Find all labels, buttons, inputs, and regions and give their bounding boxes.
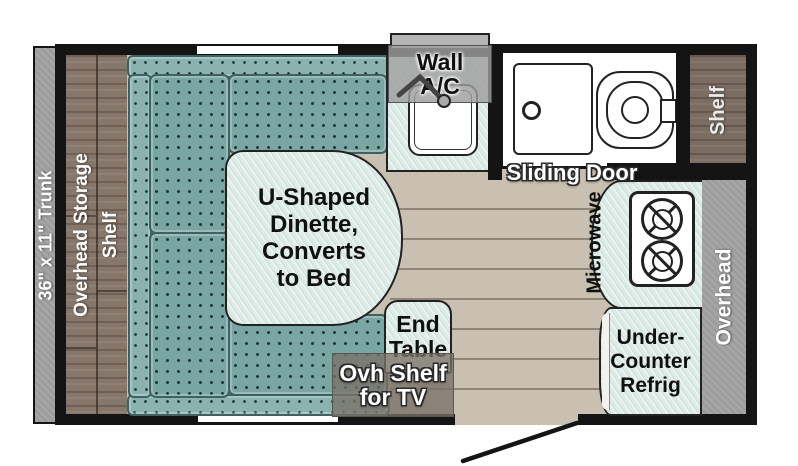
bathroom [500, 50, 684, 169]
stove-burner-icon [641, 240, 683, 282]
ovh-shelf-label-line2: for TV [360, 385, 426, 409]
dinette-seat-left-upper [149, 74, 230, 234]
storage-shelf-label-wrap: Shelf [96, 55, 127, 414]
stove-burner-icon [641, 198, 683, 240]
refrig-label-line2: Counter [610, 350, 691, 374]
sliding-door-label: Sliding Door [507, 160, 638, 185]
dinette-label-line1: U-Shaped [258, 184, 370, 211]
dinette-label-line4: to Bed [277, 265, 352, 292]
shower-sliding-panel [513, 63, 593, 155]
dinette-label-line2: Dinette, [270, 211, 358, 238]
rear-shelf: Shelf [690, 55, 746, 166]
entry-door-swing [463, 423, 577, 461]
dinette-seat-top [228, 74, 388, 154]
sliding-door-label-wrap: Sliding Door [462, 160, 682, 186]
rear-window [198, 415, 338, 422]
dinette-table: U-Shaped Dinette, Converts to Bed [225, 150, 403, 326]
wall-ac-label-line2: A/C [420, 74, 460, 98]
shower-door-handle [522, 101, 541, 120]
burner-center [652, 251, 673, 272]
overhead-label: Overhead [712, 249, 736, 346]
refrig-label-line3: Refrig [620, 374, 681, 398]
overhead-storage-label-wrap: Overhead Storage [66, 55, 98, 414]
ovh-tv-shelf: Ovh Shelf for TV [332, 353, 454, 417]
two-burner-cooktop [629, 191, 695, 287]
toilet-flush [621, 96, 649, 124]
rear-shelf-label: Shelf [707, 86, 730, 135]
end-table-label-line1: End [396, 312, 439, 337]
trunk-label-wrap: 36" x 11" Trunk [35, 48, 57, 422]
wall-ac-unit: Wall A/C [388, 45, 492, 103]
storage-shelf-label: Shelf [101, 211, 123, 257]
entry-door-opening [455, 413, 578, 425]
toilet [596, 71, 674, 149]
ovh-shelf-label-line1: Ovh Shelf [339, 361, 446, 385]
dinette-seat-left-lower [149, 232, 230, 398]
burner-center [652, 209, 673, 230]
front-window [197, 46, 338, 54]
dinette-label-line3: Converts [262, 238, 366, 265]
overhead-storage-cabinet: Overhead Storage Shelf [66, 55, 127, 414]
floorplan: 36" x 11" Trunk Overhead Storage Shelf U… [0, 0, 798, 466]
wall-ac-label-line1: Wall [417, 50, 463, 74]
toilet-tank [660, 99, 677, 123]
refrig-label-line1: Under- [617, 326, 685, 350]
trunk-label: 36" x 11" Trunk [36, 170, 57, 300]
microwave-label: Microwave [584, 191, 607, 293]
microwave-label-wrap: Microwave [582, 180, 608, 305]
overhead-cabinet: Overhead [702, 180, 746, 414]
under-counter-refrigerator: Under- Counter Refrig [599, 307, 702, 416]
overhead-label-wrap: Overhead [702, 180, 746, 414]
rear-shelf-label-wrap: Shelf [690, 55, 746, 166]
overhead-storage-label: Overhead Storage [71, 153, 93, 317]
